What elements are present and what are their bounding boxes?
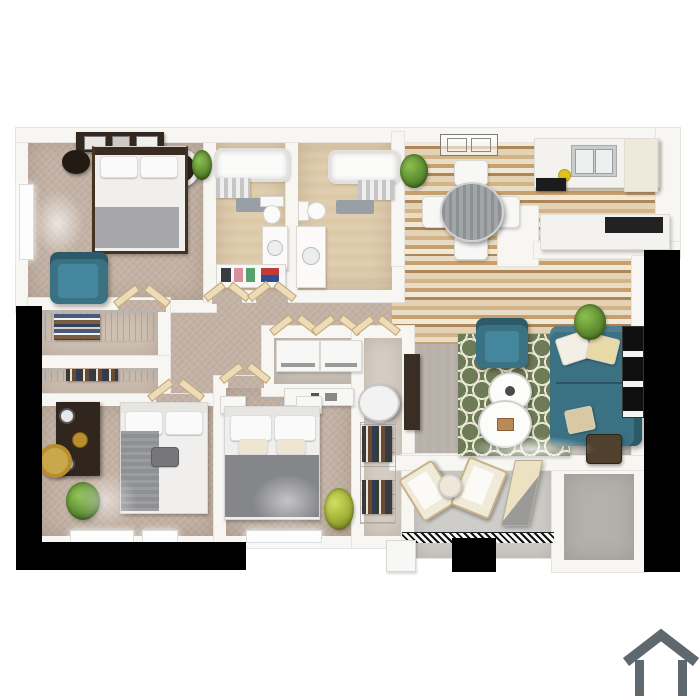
toilet-2: [298, 198, 326, 222]
shadow-band-right: [644, 250, 680, 572]
bath2-door: [252, 286, 292, 302]
dining-table: [440, 182, 504, 242]
bedroom3-door: [224, 368, 266, 384]
gold-mirror: [38, 444, 72, 478]
bedroom3-plant: [324, 488, 354, 530]
breakfast-bar: [540, 214, 670, 250]
bath1-door: [208, 286, 246, 302]
master-door: [118, 292, 166, 308]
shadow-band-bottom-left: [16, 542, 246, 570]
living-light-patch: [466, 436, 596, 462]
dryer: [320, 340, 362, 372]
laundry-bifold-left: [274, 320, 316, 336]
floor-plan: [0, 0, 700, 700]
master-window: [19, 184, 34, 260]
kitchen-sink: [571, 145, 617, 177]
master-bed: [92, 146, 188, 254]
bathtub-2: [328, 150, 400, 184]
shadow-notch-patio: [452, 538, 496, 572]
utility-shoes-bottom: [362, 480, 392, 514]
shower-curtain-1: [216, 178, 250, 198]
towel-pink: [234, 268, 243, 282]
shadow-band-left: [16, 306, 42, 554]
towel-green: [246, 268, 255, 282]
shower-curtain-2: [358, 180, 394, 200]
bedroom3-light-beam: [252, 474, 322, 528]
bar-black-counter: [605, 217, 663, 233]
cooktop: [536, 178, 566, 191]
ceiling-light-sketch: [440, 134, 498, 156]
patio-planter: [386, 540, 416, 572]
dining-plant: [400, 154, 428, 188]
master-plant: [192, 150, 212, 180]
leaning-picture-frames: [622, 326, 644, 418]
bedroom3-window: [246, 530, 322, 543]
washer: [276, 340, 320, 372]
utility-bifold: [356, 320, 396, 336]
master-light-beam: [32, 190, 84, 256]
vanity-2: [296, 226, 326, 288]
towel-dark: [221, 268, 231, 282]
storage-room: [552, 462, 646, 572]
bedroom2-door: [152, 386, 200, 402]
bathtub-1: [214, 148, 290, 182]
closet1-clothes: [54, 314, 100, 340]
living-plant: [574, 304, 606, 340]
towel-rolled: [261, 268, 279, 282]
master-armchair: [50, 252, 108, 304]
patio-side-table: [438, 474, 462, 498]
water-heater: [358, 384, 400, 422]
bedroom2-light-beam: [74, 472, 138, 528]
master-nightstand: [62, 150, 90, 174]
upper-cabinets: [624, 138, 658, 192]
console-desk: [404, 354, 420, 430]
house-outline-icon: [622, 620, 700, 698]
living-armchair: [476, 318, 528, 368]
utility-shoes-top: [362, 426, 392, 462]
toilet-1: [260, 196, 284, 224]
bath-mat-2: [336, 200, 374, 214]
closet2-shoes: [66, 369, 118, 381]
